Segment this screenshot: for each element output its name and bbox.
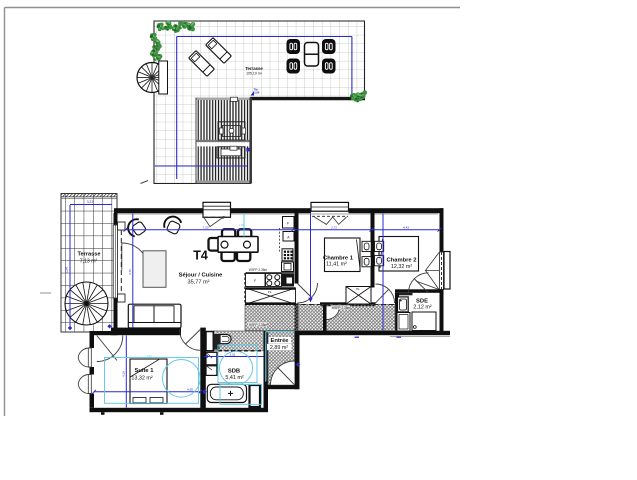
svg-text:Chambre 1: Chambre 1 [323, 255, 354, 261]
svg-text:3,23: 3,23 [87, 200, 93, 204]
svg-text:PL.: PL. [268, 290, 273, 294]
svg-text:Terrasse: Terrasse [245, 66, 263, 71]
svg-text:T4: T4 [193, 249, 208, 263]
svg-text:Séjour / Cuisine: Séjour / Cuisine [179, 273, 224, 279]
svg-text:PL: PL [356, 287, 360, 291]
svg-text:4,55: 4,55 [187, 387, 193, 391]
svg-text:Suite 1: Suite 1 [134, 368, 154, 374]
svg-text:12,32 m²: 12,32 m² [391, 264, 412, 270]
svg-text:2,01: 2,01 [229, 352, 235, 356]
svg-text:3,72: 3,72 [331, 225, 337, 229]
svg-text:HSFP 2.35m: HSFP 2.35m [332, 306, 351, 310]
svg-text:11,41 m²: 11,41 m² [326, 262, 347, 268]
svg-text:0,91: 0,91 [231, 345, 237, 349]
svg-text:Chambre 2: Chambre 2 [387, 257, 417, 263]
svg-text:4,43: 4,43 [403, 225, 409, 229]
svg-text:7,13 m²: 7,13 m² [80, 259, 98, 265]
svg-text:SDB: SDB [228, 369, 240, 375]
svg-text:F: F [287, 222, 289, 226]
svg-text:35,77 m²: 35,77 m² [187, 280, 209, 286]
svg-text:Terrasse: Terrasse [78, 252, 101, 258]
svg-text:4,70: 4,70 [128, 269, 132, 275]
svg-text:1,15: 1,15 [238, 223, 244, 227]
svg-text:2,96: 2,96 [378, 253, 382, 259]
svg-text:105,19 m²: 105,19 m² [246, 71, 263, 75]
svg-text:1,50: 1,50 [146, 354, 152, 358]
svg-text:F: F [254, 279, 256, 283]
svg-text:13,32 m²: 13,32 m² [131, 376, 152, 382]
svg-text:7,20: 7,20 [202, 225, 208, 229]
svg-text:2,89 m²: 2,89 m² [270, 345, 288, 351]
svg-text:5,41 m²: 5,41 m² [225, 375, 243, 381]
svg-text:HSFP 2.35m: HSFP 2.35m [249, 268, 268, 272]
svg-text:Entrée: Entrée [270, 338, 289, 344]
svg-text:HSFP 2.35m: HSFP 2.35m [249, 323, 268, 327]
svg-text:2,96: 2,96 [65, 267, 69, 273]
svg-text:2,12 m²: 2,12 m² [413, 305, 431, 311]
svg-text:4,16: 4,16 [122, 371, 126, 377]
